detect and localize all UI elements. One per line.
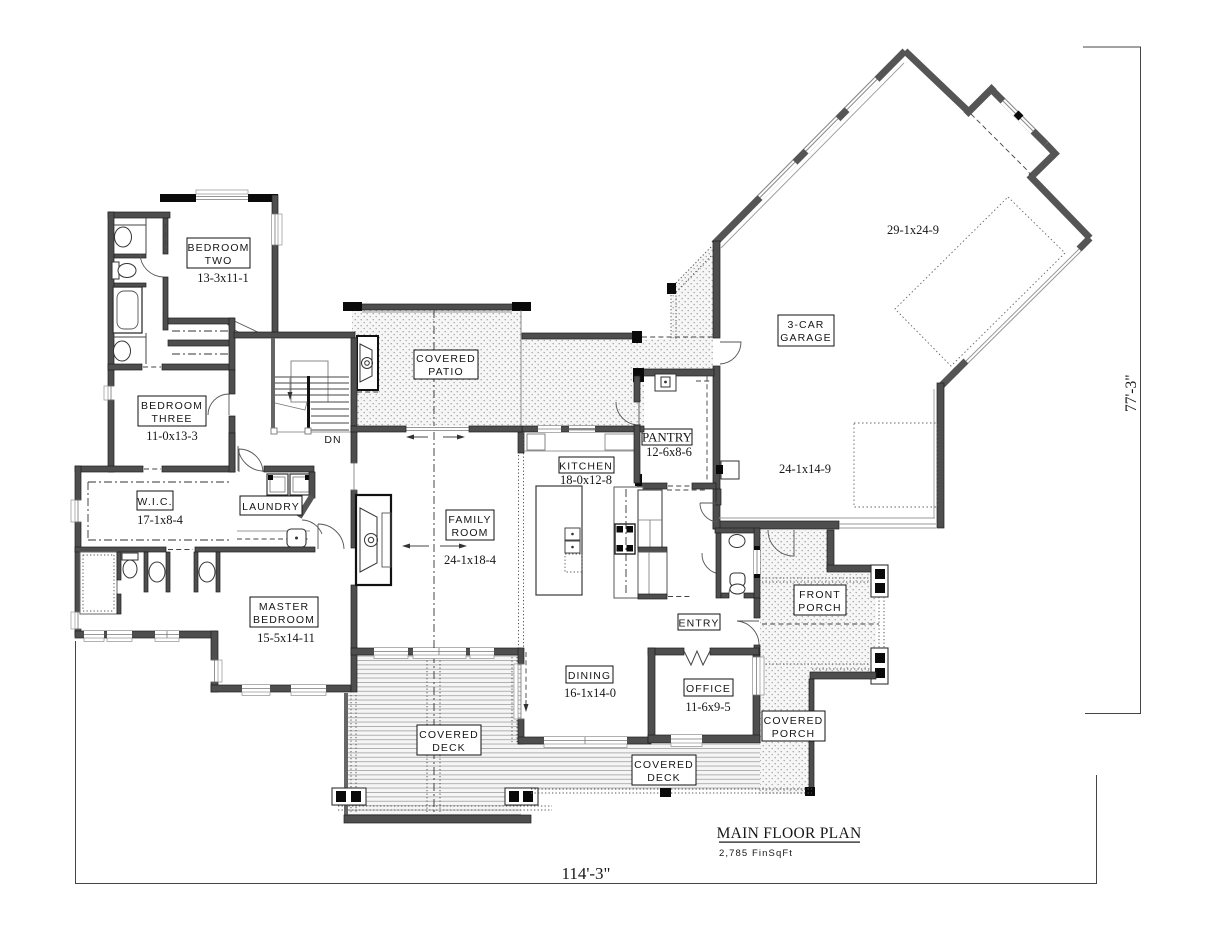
svg-text:W.I.C.: W.I.C. <box>137 496 172 508</box>
svg-text:COVERED: COVERED <box>634 759 694 771</box>
svg-text:15-5x14-11: 15-5x14-11 <box>257 631 315 645</box>
svg-text:KITCHEN: KITCHEN <box>559 461 613 473</box>
svg-text:13-3x11-1: 13-3x11-1 <box>197 271 249 285</box>
svg-text:11-0x13-3: 11-0x13-3 <box>146 429 198 443</box>
svg-text:11-6x9-5: 11-6x9-5 <box>685 700 730 714</box>
svg-text:DINING: DINING <box>568 670 611 682</box>
svg-text:29-1x24-9: 29-1x24-9 <box>887 223 939 237</box>
svg-text:18-0x12-8: 18-0x12-8 <box>560 473 612 487</box>
svg-text:FAMILY: FAMILY <box>448 514 491 526</box>
svg-text:THREE: THREE <box>151 413 192 425</box>
svg-text:COVERED: COVERED <box>764 715 824 727</box>
svg-text:ROOM: ROOM <box>451 527 488 539</box>
svg-text:LAUNDRY: LAUNDRY <box>242 501 300 513</box>
svg-text:BEDROOM: BEDROOM <box>253 614 315 626</box>
svg-text:ENTRY: ENTRY <box>679 618 720 630</box>
svg-text:MAIN FLOOR PLAN: MAIN FLOOR PLAN <box>717 825 862 842</box>
svg-text:OFFICE: OFFICE <box>686 683 731 695</box>
svg-text:DECK: DECK <box>432 742 466 754</box>
svg-text:77'-3": 77'-3" <box>1123 374 1140 412</box>
svg-text:MASTER: MASTER <box>259 601 309 613</box>
svg-text:PANTRY: PANTRY <box>642 430 693 445</box>
svg-text:FRONT: FRONT <box>799 589 841 601</box>
svg-text:12-6x8-6: 12-6x8-6 <box>646 445 692 459</box>
svg-text:PORCH: PORCH <box>798 602 841 614</box>
svg-text:2,785 FinSqFt: 2,785 FinSqFt <box>719 848 793 859</box>
svg-text:DECK: DECK <box>647 772 681 784</box>
svg-text:BEDROOM: BEDROOM <box>188 242 250 254</box>
svg-text:16-1x14-0: 16-1x14-0 <box>564 686 616 700</box>
svg-text:PATIO: PATIO <box>428 366 463 378</box>
svg-text:17-1x8-4: 17-1x8-4 <box>137 513 184 527</box>
svg-text:3-CAR: 3-CAR <box>787 319 824 331</box>
svg-text:COVERED: COVERED <box>419 729 479 741</box>
svg-text:PORCH: PORCH <box>772 728 815 740</box>
svg-text:DN: DN <box>324 434 341 446</box>
svg-text:24-1x18-4: 24-1x18-4 <box>444 553 497 567</box>
svg-text:BEDROOM: BEDROOM <box>141 400 203 412</box>
svg-text:COVERED: COVERED <box>416 353 476 365</box>
svg-text:114'-3": 114'-3" <box>561 864 610 883</box>
svg-text:GARAGE: GARAGE <box>780 332 832 344</box>
svg-text:TWO: TWO <box>205 255 233 267</box>
svg-text:24-1x14-9: 24-1x14-9 <box>779 462 831 476</box>
